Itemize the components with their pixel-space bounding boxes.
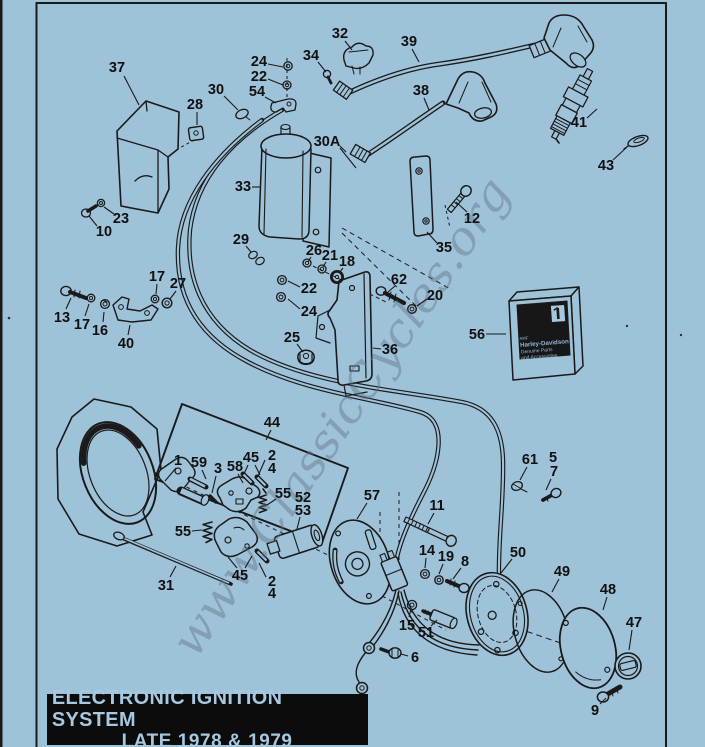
part-55-spring-left (203, 522, 212, 543)
part-10-screw (82, 206, 97, 217)
part-23-washer (97, 199, 104, 206)
callout-30: 30 (208, 82, 224, 98)
callout-22: 22 (251, 69, 267, 85)
callout-24: 24 (251, 54, 267, 70)
callout-55: 55 (175, 524, 191, 540)
callout-18: 18 (339, 254, 355, 270)
page-edge-strip (0, 0, 3, 747)
callout-leader-14 (425, 558, 426, 568)
part-27-nut (162, 298, 172, 308)
callout-leader-19 (439, 564, 443, 574)
callout-leader-55 (192, 530, 202, 531)
callout-41: 41 (571, 115, 587, 131)
callout-33: 33 (235, 179, 251, 195)
callout-leader-24 (288, 299, 300, 309)
callout-leader-45 (244, 465, 248, 474)
callout-leader-49 (552, 579, 559, 592)
parts-diagram-page: AMF Harley-Davidson Genuine Parts and Ac… (0, 0, 705, 747)
callout-37: 37 (109, 60, 125, 76)
callout-4: 4 (268, 586, 276, 602)
part-14-washer (421, 570, 430, 579)
part-41-spark-plug (543, 65, 600, 145)
callout-leader-59 (202, 470, 206, 479)
part-6-screw (381, 648, 401, 658)
part-61-clip (510, 480, 527, 492)
callout-43: 43 (598, 158, 614, 174)
callout-leader-17 (156, 284, 157, 294)
callout-leader-3 (212, 476, 216, 493)
callout-19: 19 (438, 549, 454, 565)
part-50-backing-plate (457, 566, 537, 663)
callout-14: 14 (419, 543, 435, 559)
callout-leader-30 (224, 96, 238, 110)
part-19-nut (435, 576, 443, 584)
part-21-washer (318, 265, 326, 273)
callout-40: 40 (118, 336, 134, 352)
callout-7: 7 (550, 464, 558, 480)
callout-leader-17 (85, 304, 89, 316)
callout-44: 44 (264, 415, 280, 431)
callout-53: 53 (295, 503, 311, 519)
callout-30A: 30A (314, 134, 341, 150)
callout-25: 25 (284, 330, 300, 346)
callout-6: 6 (411, 650, 419, 666)
callout-15: 15 (399, 618, 415, 634)
part-25-nut (298, 350, 314, 364)
callout-24: 24 (301, 304, 317, 320)
part-18-grommet (331, 271, 342, 282)
callout-54: 54 (249, 84, 265, 100)
part-47-emblem (615, 653, 641, 679)
callout-36: 36 (382, 342, 398, 358)
callout-9: 9 (591, 703, 599, 719)
callout-leader-34 (318, 62, 326, 72)
part-26-washer (303, 259, 311, 267)
callout-49: 49 (554, 564, 570, 580)
callout-leader-22 (268, 79, 283, 85)
callout-4: 4 (268, 461, 276, 477)
callout-29: 29 (233, 232, 249, 248)
callout-17: 17 (74, 317, 90, 333)
callout-16: 16 (92, 323, 108, 339)
ring-terminal-upper (364, 643, 375, 654)
callout-45: 45 (243, 450, 259, 466)
part-35-bracket (410, 156, 433, 236)
callout-35: 35 (436, 240, 452, 256)
callout-leader-41 (587, 109, 597, 118)
callout-38: 38 (413, 83, 429, 99)
callout-leader-39 (412, 49, 419, 62)
part-8-screw (447, 579, 469, 593)
title-banner: ELECTRONIC IGNITION SYSTEM LATE 1978 & 1… (47, 694, 368, 745)
callout-47: 47 (626, 615, 642, 631)
callout-26: 26 (306, 243, 322, 259)
callout-22: 22 (301, 281, 317, 297)
callout-leader-22 (288, 281, 300, 287)
callout-11: 11 (429, 498, 444, 514)
callout-leader-47 (629, 630, 632, 650)
callout-leader-54 (265, 97, 276, 103)
callout-61: 61 (522, 452, 538, 468)
callout-leader-48 (603, 597, 607, 610)
callout-leader-61 (520, 467, 527, 480)
callout-45: 45 (232, 568, 248, 584)
callout-58: 58 (227, 459, 243, 475)
part-17-washer-left (87, 294, 95, 302)
callout-31: 31 (158, 578, 174, 594)
callout-leader-43 (613, 147, 627, 160)
part-32-boot (344, 43, 373, 74)
callout-62: 62 (391, 272, 407, 288)
callout-48: 48 (600, 582, 616, 598)
banner-title: ELECTRONIC IGNITION SYSTEM (52, 687, 363, 731)
callout-28: 28 (187, 97, 203, 113)
part-17-washer-right (151, 295, 159, 303)
callout-leader-57 (357, 503, 367, 519)
callout-leader-6 (401, 654, 408, 656)
callout-34: 34 (303, 48, 319, 64)
callout-13: 13 (54, 310, 70, 326)
callout-leader-24 (268, 64, 283, 67)
part-24-washer-mid (277, 293, 286, 302)
callout-27: 27 (170, 276, 186, 292)
part-37-cover (117, 101, 179, 213)
callout-leader-31 (170, 566, 176, 577)
part-22-washer-mid (278, 276, 287, 285)
callout-8: 8 (461, 554, 469, 570)
callout-23: 23 (113, 211, 129, 227)
callout-leader-40 (128, 325, 130, 335)
callout-3: 3 (214, 461, 222, 477)
callout-12: 12 (464, 211, 480, 227)
part-13-bolt (61, 286, 86, 298)
callout-55: 55 (275, 486, 291, 502)
part-29-clip (247, 250, 265, 266)
part-28-nut (188, 126, 204, 141)
box-amf-mark: AMF (519, 335, 529, 341)
callout-leader-38 (424, 98, 429, 110)
callout-1: 1 (174, 453, 182, 469)
part-16-lockwasher (101, 300, 110, 309)
part-56-parts-box: AMF Harley-Davidson Genuine Parts and Ac… (509, 287, 583, 380)
part-9-bolt (597, 687, 620, 702)
callout-20: 20 (427, 288, 443, 304)
part-24-washer-top (284, 62, 292, 70)
callout-leader-13 (66, 298, 71, 309)
callout-leader-16 (103, 312, 104, 322)
banner-subtitle: LATE 1978 & 1979 (122, 731, 293, 747)
callout-57: 57 (364, 488, 380, 504)
callout-leader-7 (546, 479, 551, 490)
part-34-screw (323, 70, 331, 83)
callout-56: 56 (469, 327, 485, 343)
callout-17: 17 (149, 269, 165, 285)
callout-leader-8 (453, 568, 461, 579)
callout-39: 39 (401, 34, 417, 50)
part-43-terminal (624, 133, 649, 149)
callout-32: 32 (332, 26, 348, 42)
callout-21: 21 (322, 248, 338, 264)
callout-50: 50 (510, 545, 526, 561)
cam-cover-outline (57, 399, 170, 546)
diagram-canvas: AMF Harley-Davidson Genuine Parts and Ac… (0, 0, 705, 747)
callout-10: 10 (96, 224, 112, 240)
callout-leader-37 (124, 76, 139, 105)
callout-59: 59 (191, 455, 207, 471)
callout-leader-11 (428, 513, 434, 524)
part-48-cover (551, 601, 624, 694)
callout-51: 51 (418, 625, 434, 641)
part-59-pin (190, 479, 206, 487)
